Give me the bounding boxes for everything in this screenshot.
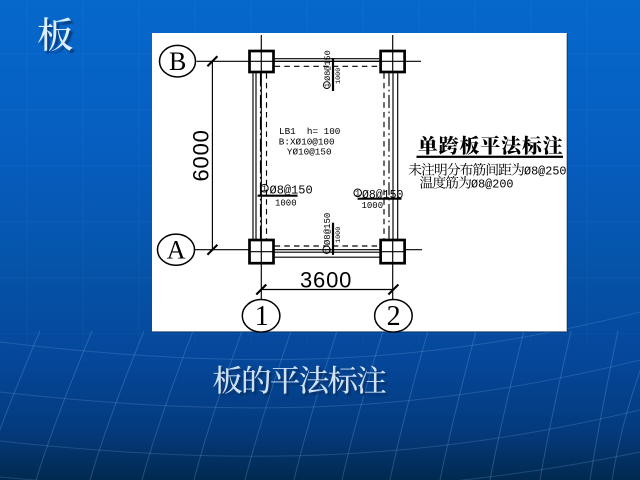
svg-text:LB1 h= 100: LB1 h= 100 xyxy=(279,126,340,137)
svg-text:3600: 3600 xyxy=(300,268,352,293)
svg-text:6000: 6000 xyxy=(189,129,214,181)
svg-text:Ø8@250: Ø8@250 xyxy=(524,164,566,178)
svg-text:Ø8@150: Ø8@150 xyxy=(323,50,333,81)
svg-text:1: 1 xyxy=(262,184,267,194)
svg-text:1000: 1000 xyxy=(335,227,343,243)
svg-text:A: A xyxy=(167,235,186,264)
svg-text:Ø8@200: Ø8@200 xyxy=(471,177,513,191)
svg-text:1: 1 xyxy=(324,83,331,87)
svg-text:Ø8@150: Ø8@150 xyxy=(323,213,333,245)
svg-text:1000: 1000 xyxy=(362,201,384,211)
svg-text:YØ10@150: YØ10@150 xyxy=(287,147,332,158)
svg-text:1: 1 xyxy=(324,248,332,252)
svg-text:1000: 1000 xyxy=(335,68,343,84)
svg-text:1: 1 xyxy=(255,301,269,332)
svg-text:2: 2 xyxy=(387,301,401,332)
svg-text:Ø8@150: Ø8@150 xyxy=(362,189,404,202)
svg-text:B: B xyxy=(169,47,186,76)
svg-text:1: 1 xyxy=(355,189,360,199)
svg-text:Ø8@150: Ø8@150 xyxy=(270,184,313,198)
svg-text:1000: 1000 xyxy=(275,199,297,209)
